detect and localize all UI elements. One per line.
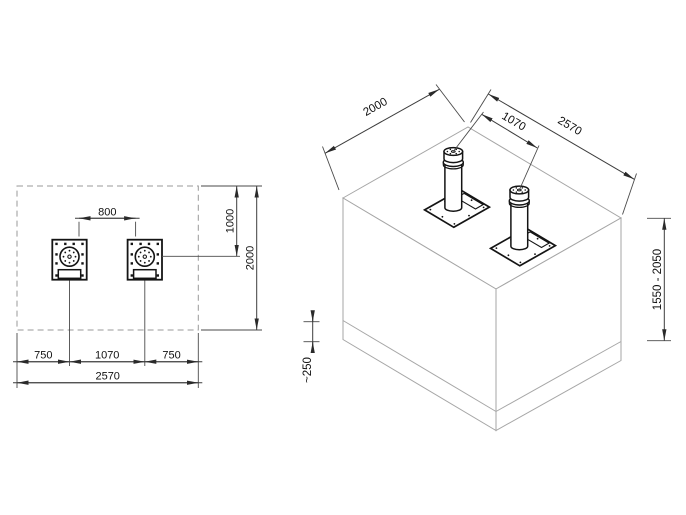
foundation-block [343,127,621,431]
plan-view: 800 1000 2000 750 1070 750 [13,186,262,388]
drawing-canvas: 800 1000 2000 750 1070 750 [0,0,686,515]
baseplate-plan-right [128,240,162,280]
iso-dim-base-depth: ~250 [302,311,320,383]
bollard-foundation-technical-drawing: 800 1000 2000 750 1070 750 [0,0,686,515]
iso-dim-2570-label: 2570 [555,115,583,138]
plan-dim-2000: 2000 [245,186,257,330]
plan-dim-800-label: 800 [98,207,116,219]
plan-dim-750-left-label: 750 [34,350,52,362]
plan-dim-1000-label: 1000 [225,209,237,233]
plan-dim-1070-label: 1070 [95,350,119,362]
iso-view: 2000 2570 1070 1550 - 2050 [302,85,671,431]
plan-dim-2000-label: 2000 [245,246,257,270]
iso-dim-2000-label: 2000 [361,96,389,119]
plan-dim-row-750-1070-750: 750 1070 750 [13,350,202,362]
iso-dim-base-depth-label: ~250 [302,357,314,383]
baseplate-plan-left [52,240,86,280]
plan-dim-2570: 2570 [13,371,202,383]
plan-dim-2570-label: 2570 [95,371,119,383]
iso-dim-1070-label: 1070 [499,110,527,133]
plan-dim-800: 800 [75,207,140,237]
plan-dim-1000: 1000 [225,186,237,256]
iso-dim-height-range-label: 1550 - 2050 [652,249,664,310]
iso-dim-height-range: 1550 - 2050 [647,218,671,340]
plan-dim-750-right-label: 750 [162,350,180,362]
